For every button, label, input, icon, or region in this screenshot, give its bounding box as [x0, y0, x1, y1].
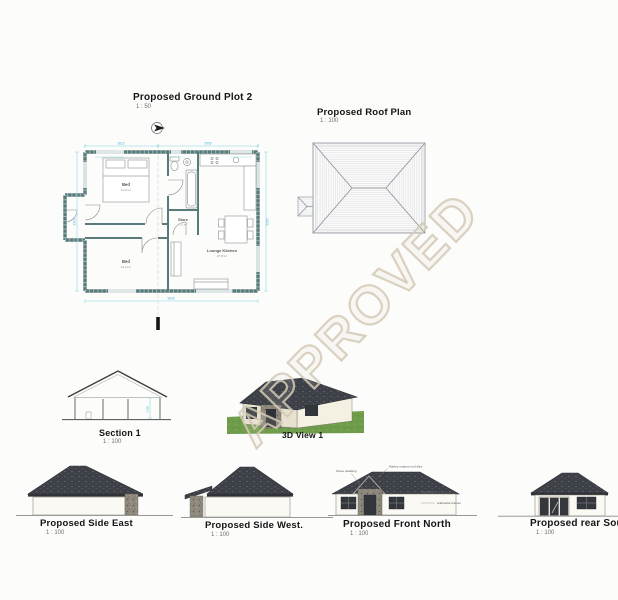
elevation-south-scale: 1 : 100 — [536, 530, 554, 536]
west-wall — [205, 497, 290, 517]
roof-porch-projection — [298, 197, 313, 216]
roof-plan-title: Proposed Roof Plan — [317, 107, 411, 118]
room-area-store: 1.6 m² — [179, 223, 187, 227]
room-label-bed1: Bed — [122, 182, 130, 187]
section-drawing: 2400 — [62, 371, 171, 420]
elevation-west-title: Proposed Side West. — [205, 520, 303, 531]
sideboard — [194, 279, 228, 289]
bathtub-icon — [186, 170, 197, 208]
room-label-bed2: Bed — [122, 259, 130, 264]
elevation-west-drawing — [181, 467, 333, 517]
room-area-lounge: 27.8 m² — [217, 254, 227, 258]
room-area-bed1: 11.9 m² — [121, 188, 131, 192]
house-window-right — [305, 405, 318, 416]
south-window — [577, 497, 596, 509]
room-label-lounge: Lounge Kitchen — [207, 248, 238, 253]
front-window-right — [389, 497, 404, 509]
dining-table — [219, 216, 254, 243]
front-door — [364, 495, 376, 515]
elevation-east-title: Proposed Side East — [40, 518, 133, 529]
elevation-east-drawing — [16, 466, 173, 515]
3d-view-title: 3D View 1 — [282, 430, 323, 440]
room-area-bed2: 11.2 m² — [121, 265, 131, 269]
east-wall — [33, 497, 125, 515]
elevation-front-scale: 1 : 100 — [350, 531, 368, 537]
roof-plan-scale: 1 : 100 — [320, 118, 338, 124]
elevation-front-drawing: Stone cladding Marley modern roof tiles … — [328, 465, 477, 516]
room-label-store: Store — [178, 218, 188, 222]
sofa — [171, 242, 181, 276]
east-stone-pillar — [125, 494, 138, 515]
ground-plan-title: Proposed Ground Plot 2 — [133, 92, 252, 103]
dim-top-left: 3613 — [117, 142, 124, 146]
toilet-icon — [170, 157, 179, 171]
front-window-left — [341, 497, 356, 509]
elevation-east-scale: 1 : 100 — [46, 530, 64, 536]
ground-floor-plan: Bed 11.9 m² Store 1.6 m² Bed 11.2 m² Lou… — [65, 123, 270, 331]
elevation-south-drawing — [498, 473, 618, 516]
basin-icon — [183, 158, 190, 165]
house-front-door — [266, 409, 276, 427]
house-window-left — [246, 407, 257, 419]
section-marker — [156, 317, 160, 330]
annotation-roof-tiles: Marley modern roof tiles — [389, 465, 423, 469]
south-patio-doors — [539, 497, 569, 516]
dim-left: 3313 — [73, 218, 77, 225]
kitchen-counter — [200, 154, 256, 210]
west-roof — [207, 467, 293, 494]
north-arrow-icon — [152, 123, 166, 134]
south-roof — [531, 473, 608, 493]
dim-right: 5050 — [266, 218, 270, 225]
east-roof — [28, 466, 143, 494]
dim-bottom: 9935 — [167, 297, 174, 301]
west-fascia — [207, 494, 293, 497]
drawing-sheet: Bed 11.9 m² Store 1.6 m² Bed 11.2 m² Lou… — [0, 0, 618, 600]
bed-icon — [103, 158, 149, 202]
annotation-anthracite-frames: anthracite frames — [437, 501, 461, 505]
dim-top-right: 5995 — [204, 142, 211, 146]
ground-plan-scale: 1 : 50 — [136, 104, 151, 110]
roof-plan-drawing — [298, 143, 425, 233]
annotation-stone-cladding: Stone cladding — [336, 469, 357, 473]
elevation-west-scale: 1 : 100 — [211, 532, 229, 538]
annotation-white-render: white render — [437, 490, 454, 494]
section-scale: 1 : 100 — [103, 439, 121, 445]
3d-view-drawing — [227, 378, 364, 434]
section-dim: 2400 — [146, 405, 150, 412]
elevation-south-title: Proposed rear South — [530, 518, 618, 529]
elevation-front-title: Proposed Front North — [343, 519, 451, 530]
section-title: Section 1 — [99, 428, 141, 438]
west-stone-pillar — [190, 496, 203, 517]
